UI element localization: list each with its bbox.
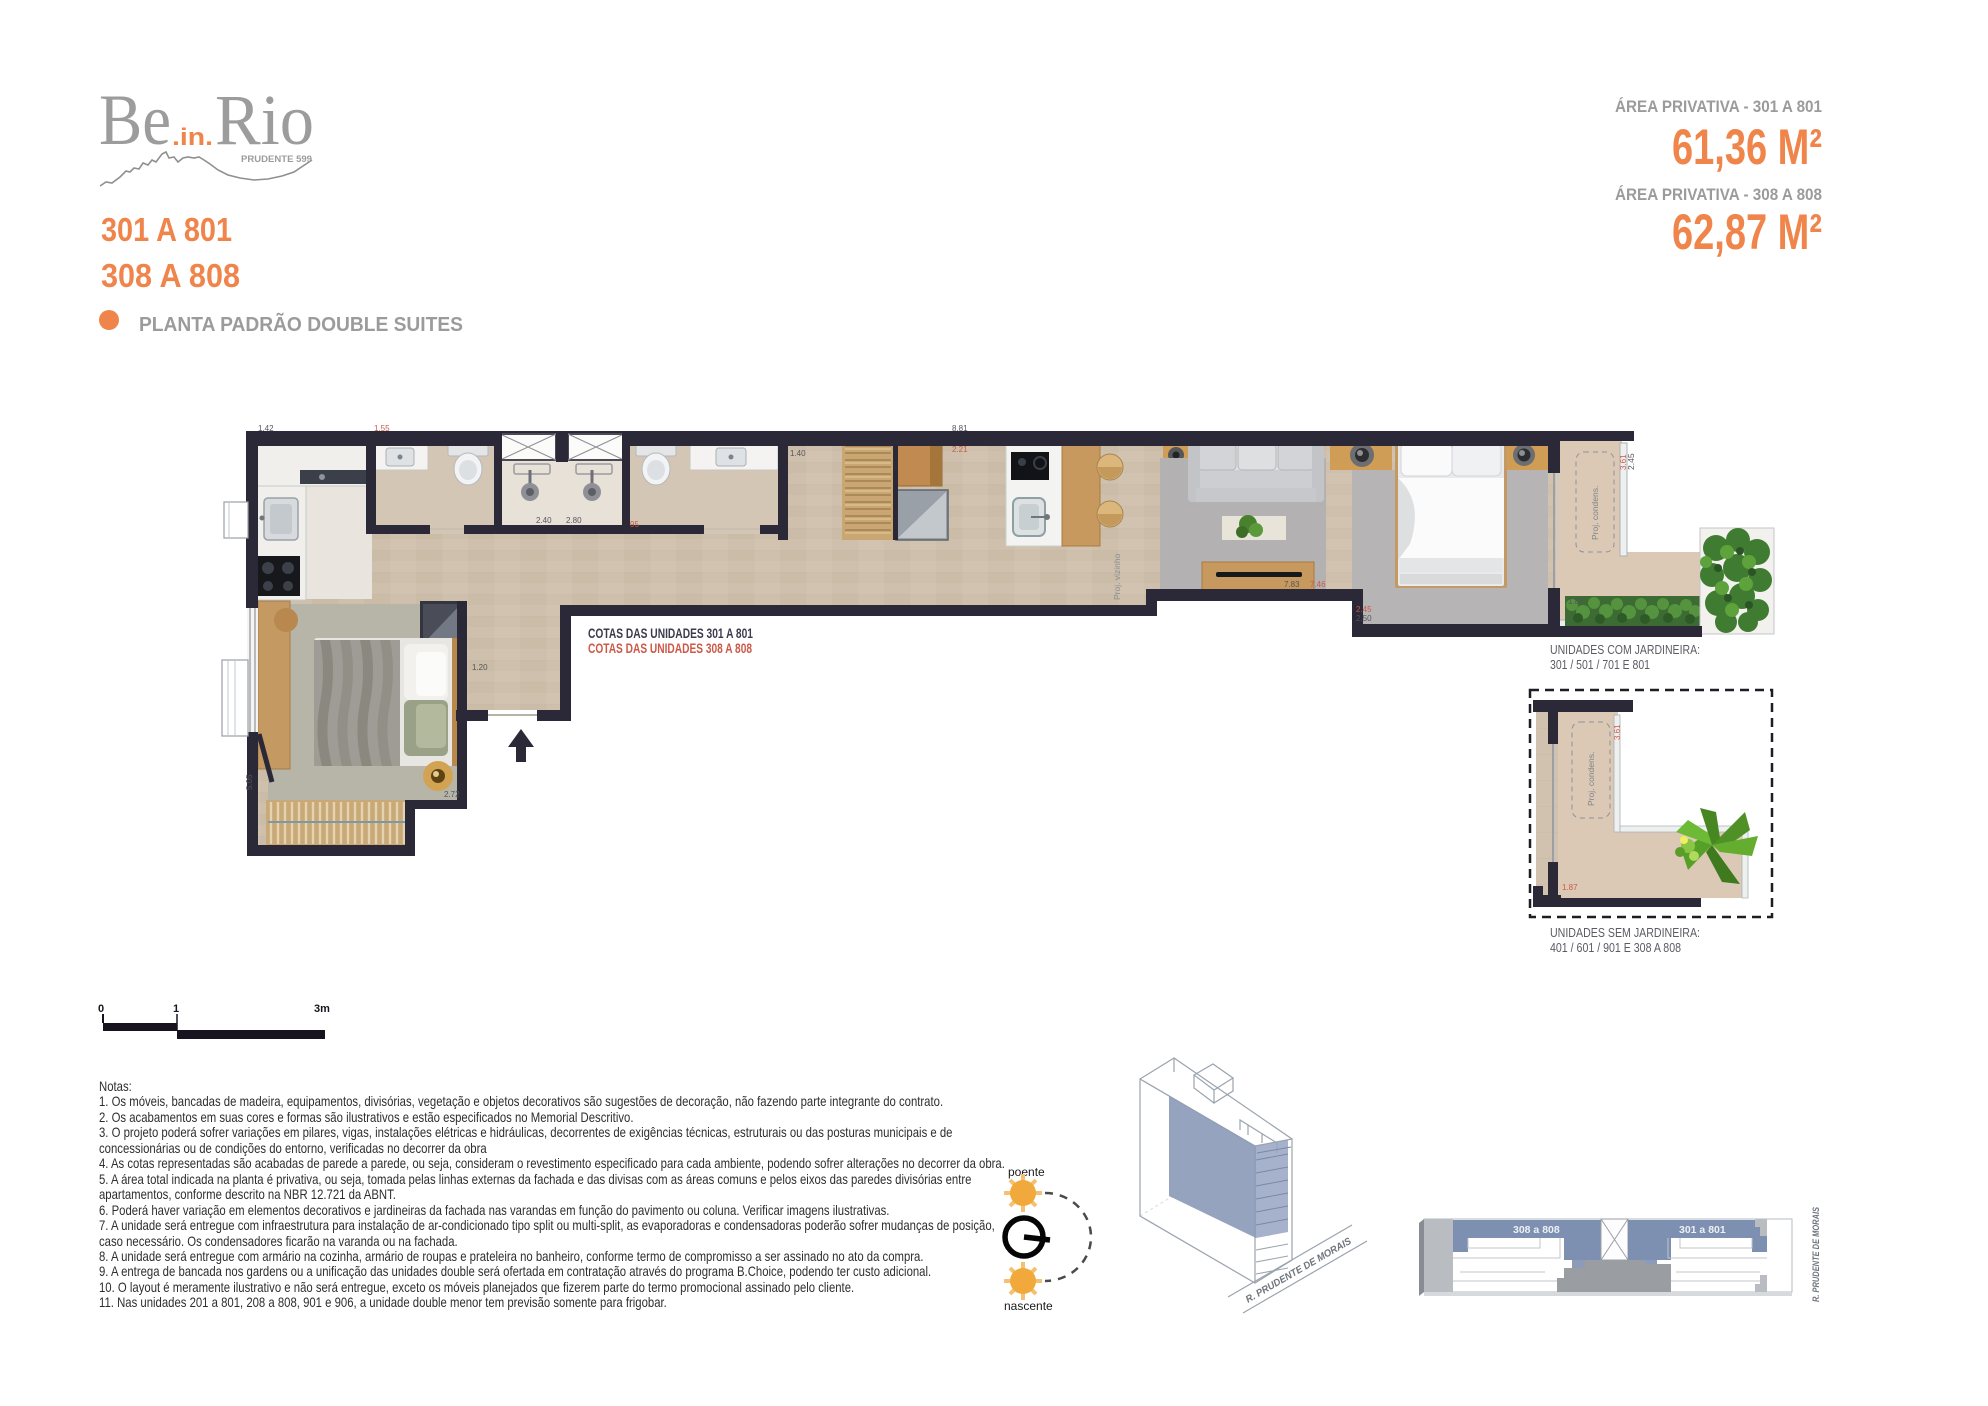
svg-text:95: 95 — [630, 520, 639, 529]
svg-text:0: 0 — [98, 1003, 104, 1015]
svg-text:301 / 501 / 701 E 801: 301 / 501 / 701 E 801 — [1550, 658, 1650, 672]
svg-text:3.61: 3.61 — [1613, 724, 1622, 740]
svg-text:Proj. vizinho: Proj. vizinho — [1112, 553, 1122, 600]
svg-text:2.21: 2.21 — [952, 445, 968, 454]
svg-text:Proj. condens.: Proj. condens. — [1586, 752, 1596, 806]
svg-text:7.46: 7.46 — [1310, 580, 1326, 589]
svg-text:2.72: 2.72 — [444, 790, 460, 799]
svg-text:COTAS DAS UNIDADES 301 A 801: COTAS DAS UNIDADES 301 A 801 — [588, 626, 753, 641]
svg-text:R. PRUDENTE DE MORAIS: R. PRUDENTE DE MORAIS — [1811, 1206, 1822, 1302]
svg-text:1.55: 1.55 — [374, 424, 390, 433]
svg-text:3.61: 3.61 — [1619, 454, 1628, 470]
svg-text:1.42: 1.42 — [258, 424, 274, 433]
svg-text:1.87: 1.87 — [1562, 883, 1578, 892]
svg-text:3m: 3m — [314, 1003, 330, 1015]
svg-text:2.50: 2.50 — [1356, 614, 1372, 623]
svg-text:UNIDADES SEM JARDINEIRA:: UNIDADES SEM JARDINEIRA: — [1550, 926, 1700, 940]
svg-text:301 a 801: 301 a 801 — [1679, 1224, 1726, 1236]
svg-text:7.83: 7.83 — [1284, 580, 1300, 589]
svg-text:1: 1 — [173, 1003, 179, 1015]
svg-text:2.45: 2.45 — [1356, 605, 1372, 614]
svg-text:1.40: 1.40 — [790, 449, 806, 458]
svg-text:401 / 601 / 901 E 308 A 808: 401 / 601 / 901 E 308 A 808 — [1550, 941, 1681, 955]
svg-text:308 a 808: 308 a 808 — [1513, 1224, 1560, 1236]
svg-text:R. PRUDENTE DE MORAIS: R. PRUDENTE DE MORAIS — [1244, 1236, 1354, 1306]
svg-text:1.87: 1.87 — [1568, 597, 1584, 606]
svg-text:COTAS DAS UNIDADES 308 A 808: COTAS DAS UNIDADES 308 A 808 — [588, 641, 752, 656]
svg-text:2.40: 2.40 — [536, 516, 552, 525]
svg-text:UNIDADES COM JARDINEIRA:: UNIDADES COM JARDINEIRA: — [1550, 643, 1700, 657]
svg-text:2.80: 2.80 — [566, 516, 582, 525]
svg-text:5.05: 5.05 — [245, 774, 254, 790]
svg-text:nascente: nascente — [1004, 1299, 1053, 1313]
svg-text:8.81: 8.81 — [952, 424, 968, 433]
svg-text:1.20: 1.20 — [472, 663, 488, 672]
svg-text:Proj. condens.: Proj. condens. — [1590, 486, 1600, 540]
svg-text:poente: poente — [1008, 1165, 1045, 1179]
